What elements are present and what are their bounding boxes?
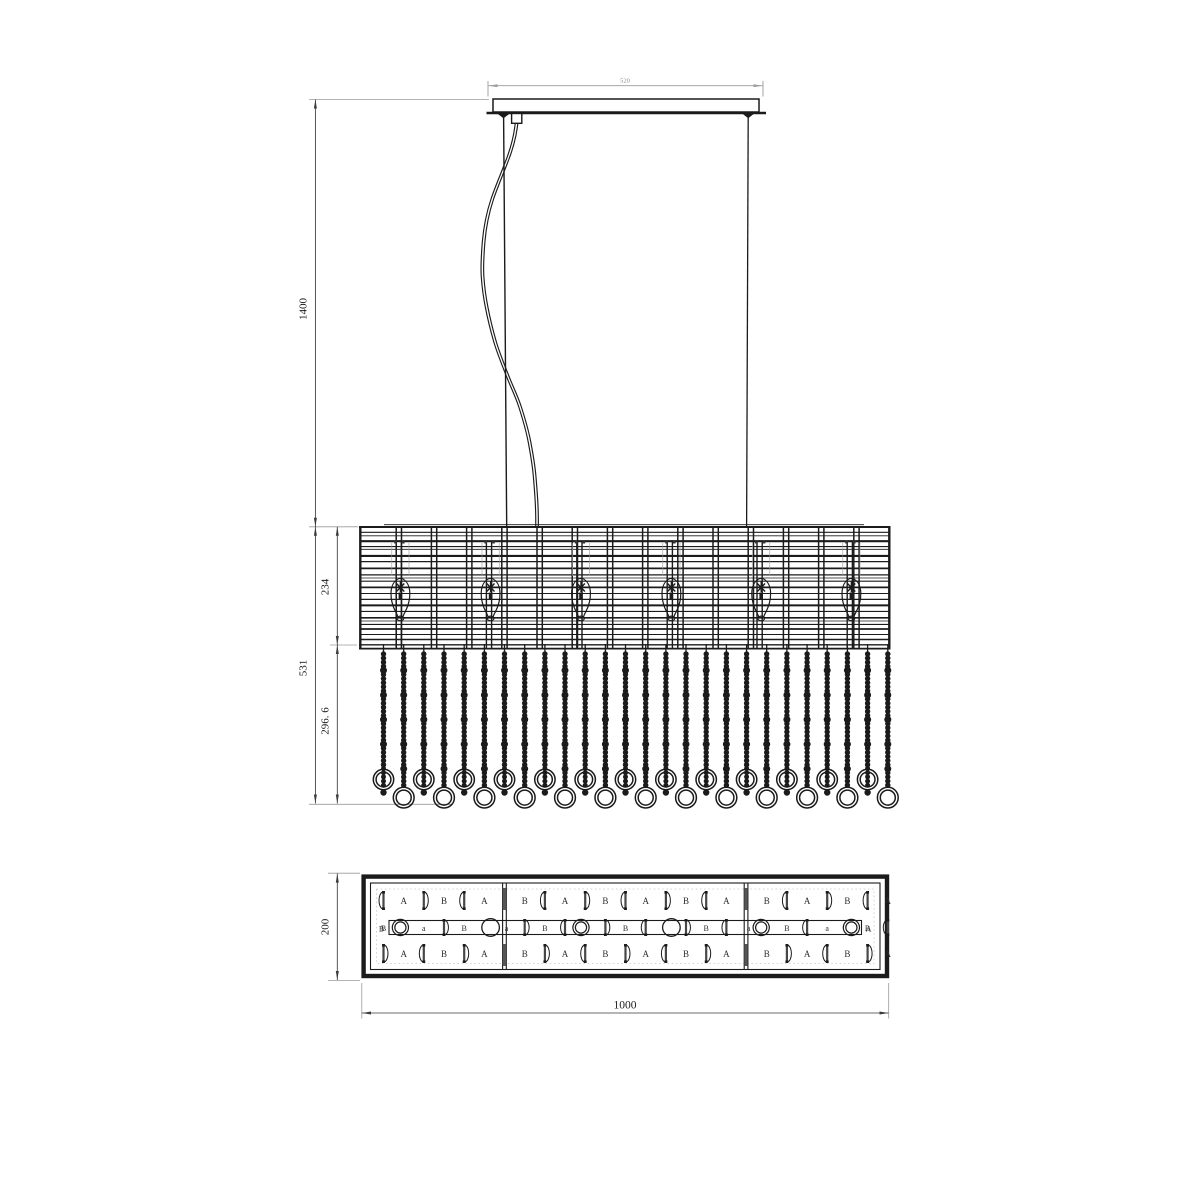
svg-text:B: B bbox=[462, 924, 467, 933]
svg-text:A: A bbox=[400, 896, 407, 906]
svg-text:B: B bbox=[764, 896, 770, 906]
svg-text:A: A bbox=[400, 949, 407, 959]
svg-text:B: B bbox=[602, 896, 608, 906]
svg-text:a: a bbox=[747, 924, 751, 933]
svg-text:A: A bbox=[481, 949, 488, 959]
svg-text:A: A bbox=[642, 949, 649, 959]
svg-text:B: B bbox=[542, 924, 547, 933]
svg-text:B: B bbox=[522, 896, 528, 906]
svg-text:A: A bbox=[804, 949, 811, 959]
svg-text:B: B bbox=[683, 949, 689, 959]
svg-text:B: B bbox=[683, 896, 689, 906]
svg-text:B: B bbox=[441, 949, 447, 959]
svg-text:520: 520 bbox=[620, 77, 630, 84]
svg-text:A: A bbox=[723, 896, 730, 906]
svg-text:a: a bbox=[422, 924, 426, 933]
svg-text:B: B bbox=[844, 949, 850, 959]
svg-text:B: B bbox=[623, 924, 628, 933]
svg-text:296. 6: 296. 6 bbox=[320, 707, 332, 735]
svg-text:B: B bbox=[784, 924, 789, 933]
svg-text:B: B bbox=[379, 925, 384, 934]
svg-text:234: 234 bbox=[320, 578, 332, 595]
svg-text:B: B bbox=[704, 924, 709, 933]
svg-text:B: B bbox=[522, 949, 528, 959]
svg-text:B: B bbox=[764, 949, 770, 959]
svg-text:A: A bbox=[866, 925, 872, 934]
svg-text:a: a bbox=[505, 924, 509, 933]
svg-text:200: 200 bbox=[320, 918, 332, 935]
svg-text:A: A bbox=[804, 896, 811, 906]
svg-text:a: a bbox=[825, 924, 829, 933]
svg-text:A: A bbox=[481, 896, 488, 906]
svg-text:A: A bbox=[562, 896, 569, 906]
svg-text:A: A bbox=[723, 949, 730, 959]
svg-text:531: 531 bbox=[298, 660, 310, 677]
svg-text:B: B bbox=[441, 896, 447, 906]
svg-text:B: B bbox=[844, 896, 850, 906]
svg-text:B: B bbox=[602, 949, 608, 959]
svg-text:A: A bbox=[885, 949, 892, 959]
svg-text:1000: 1000 bbox=[614, 1000, 637, 1012]
svg-text:1400: 1400 bbox=[298, 298, 310, 321]
svg-text:A: A bbox=[642, 896, 649, 906]
svg-text:A: A bbox=[562, 949, 569, 959]
svg-text:A: A bbox=[885, 896, 892, 906]
